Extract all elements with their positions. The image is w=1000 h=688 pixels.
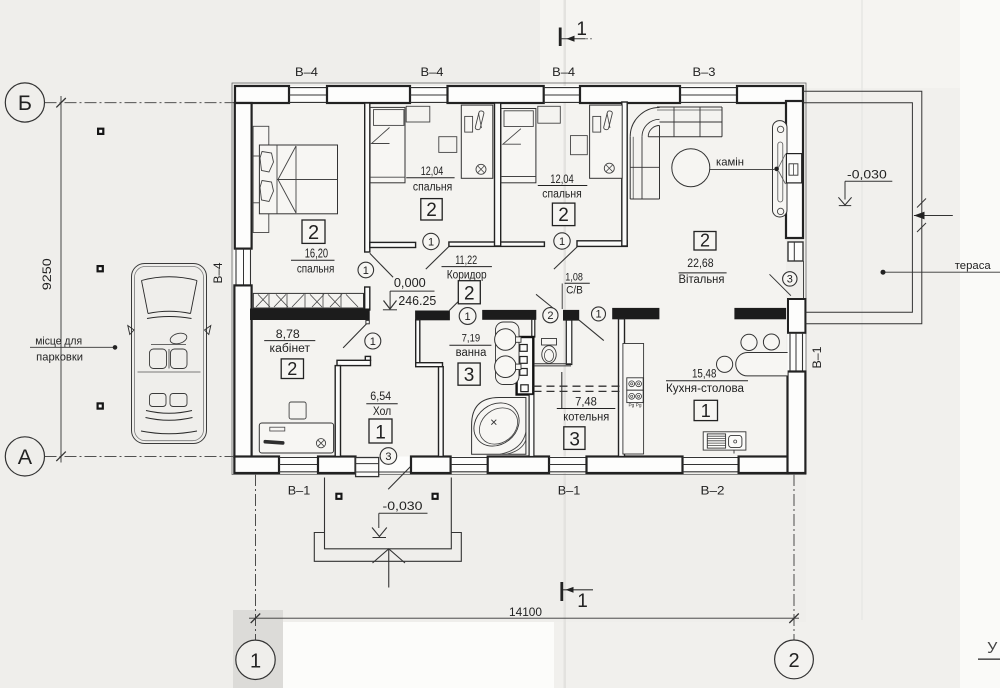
svg-text:В–4: В–4 [552,65,575,79]
svg-text:246.25: 246.25 [398,293,436,308]
svg-text:2: 2 [426,200,437,221]
svg-text:7,19: 7,19 [462,332,481,344]
svg-text:0,000: 0,000 [394,276,426,290]
svg-text:16,20: 16,20 [305,247,328,261]
svg-text:1: 1 [465,311,471,323]
svg-text:1: 1 [576,19,587,40]
svg-text:15,48: 15,48 [692,369,716,381]
svg-text:3: 3 [787,274,793,286]
svg-text:7,48: 7,48 [575,396,597,408]
svg-text:3: 3 [385,451,391,463]
svg-text:місце для: місце для [35,335,82,347]
svg-text:спальня: спальня [413,182,452,194]
svg-text:2: 2 [287,359,297,379]
svg-text:-0,030: -0,030 [383,499,423,513]
svg-text:Pg Pg: Pg Pg [629,403,643,408]
svg-text:1: 1 [363,265,369,277]
svg-text:1: 1 [577,591,588,612]
svg-text:9250: 9250 [42,258,54,290]
svg-text:В–1: В–1 [558,484,581,498]
svg-text:В–3: В–3 [693,65,716,79]
svg-text:-0,030: -0,030 [847,168,887,182]
svg-text:Вітальня: Вітальня [679,274,725,286]
svg-text:С/В: С/В [566,285,583,297]
svg-text:3: 3 [464,365,475,386]
svg-text:В–4: В–4 [211,262,225,283]
svg-text:8,78: 8,78 [276,327,300,341]
svg-text:У: У [987,640,998,657]
svg-text:В–1: В–1 [288,484,311,498]
svg-text:6,54: 6,54 [370,391,391,403]
svg-text:2: 2 [558,205,569,226]
svg-text:1: 1 [250,650,261,672]
svg-text:2: 2 [547,310,553,322]
svg-text:1,08: 1,08 [565,271,583,283]
svg-text:тераса: тераса [955,260,992,272]
svg-text:Коридор: Коридор [447,269,487,281]
svg-text:1: 1 [428,236,434,248]
svg-text:22,68: 22,68 [687,256,714,270]
svg-text:парковки: парковки [36,352,83,364]
svg-text:А: А [18,445,33,469]
svg-text:В–4: В–4 [295,65,318,79]
svg-text:14100: 14100 [509,607,542,619]
svg-text:1: 1 [370,336,376,348]
svg-text:В–1: В–1 [810,346,824,368]
svg-text:котельня: котельня [563,411,609,423]
svg-text:1: 1 [559,236,565,248]
svg-text:2: 2 [464,284,475,305]
svg-text:ванна: ванна [456,347,487,359]
svg-text:1: 1 [375,423,386,444]
svg-text:спальня: спальня [542,188,581,200]
svg-text:спальня: спальня [297,263,335,275]
svg-text:12,04: 12,04 [421,166,444,178]
svg-text:В–4: В–4 [421,65,444,79]
svg-text:11,22: 11,22 [455,255,477,267]
svg-text:1: 1 [595,309,601,321]
svg-text:2: 2 [700,231,710,251]
svg-text:Хол: Хол [373,406,391,418]
svg-text:2: 2 [308,222,319,244]
svg-text:камін: камін [716,157,744,169]
svg-text:2: 2 [788,650,799,672]
svg-text:12,04: 12,04 [550,174,574,186]
svg-text:В–2: В–2 [701,484,725,498]
svg-text:3: 3 [569,429,580,450]
svg-text:Б: Б [18,91,32,115]
svg-text:Кухня-столова: Кухня-столова [666,383,745,395]
svg-text:кабінет: кабінет [270,343,311,355]
svg-text:1: 1 [701,401,711,421]
